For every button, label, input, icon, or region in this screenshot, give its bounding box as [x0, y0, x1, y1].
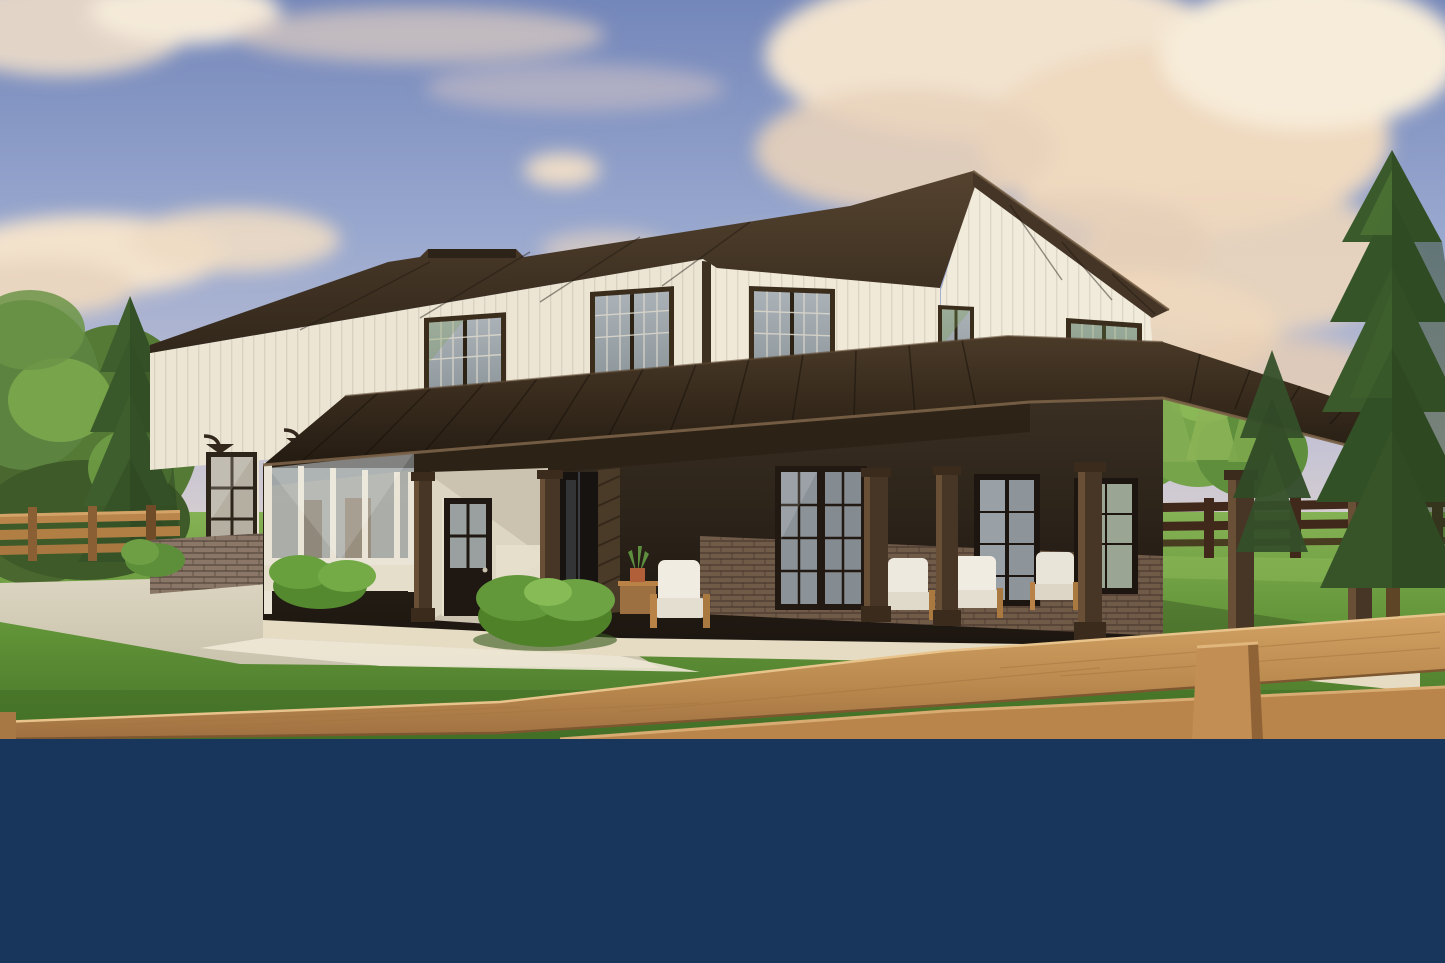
roof-cupola: [428, 249, 516, 258]
french-door: [775, 466, 867, 610]
listing-graphic: BG-20046 DELANO BARNDOMINIUM 3 BEDROOM 2…: [0, 0, 1445, 963]
house-render-photo: [0, 0, 1445, 739]
fence-post: [0, 712, 16, 739]
info-banner: BG-20046 DELANO BARNDOMINIUM 3 BEDROOM 2…: [0, 739, 1445, 963]
fence-post: [1192, 643, 1263, 739]
corner-downspout: [702, 261, 711, 366]
